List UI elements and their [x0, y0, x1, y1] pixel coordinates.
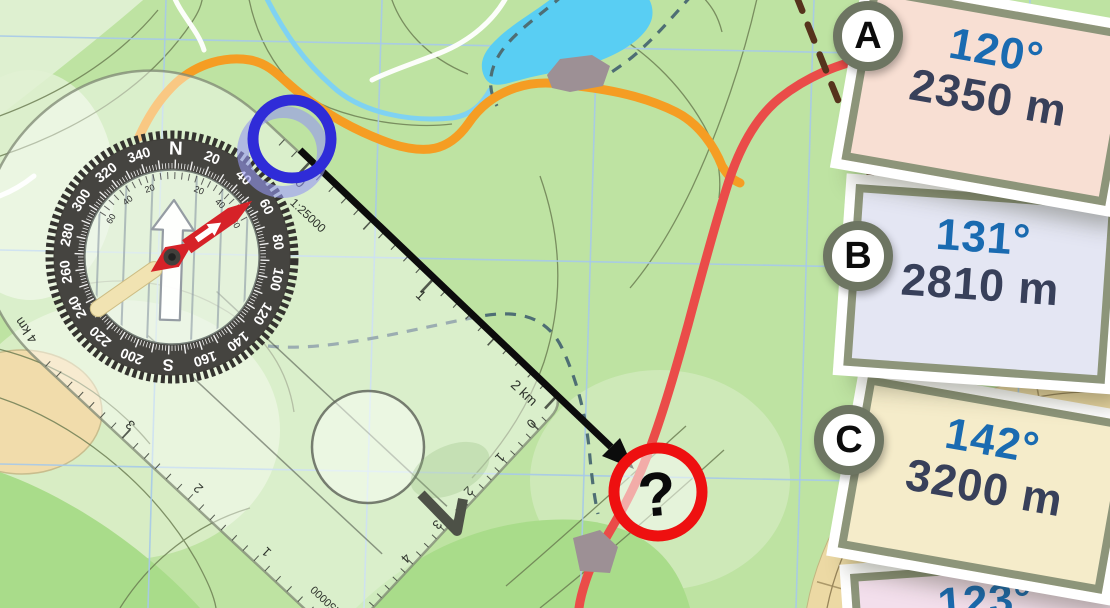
badge-option-c[interactable]: C	[814, 405, 884, 475]
target-question-mark: ?	[635, 459, 679, 531]
answer-card-b[interactable]: 131° 2810 m	[843, 184, 1110, 384]
dial-degree-label: 80	[269, 233, 287, 251]
dial-degree-label: S	[162, 355, 174, 373]
magnifier-lens	[312, 391, 424, 503]
distance-value: 3200 m	[902, 451, 1066, 525]
badge-option-a[interactable]: A	[833, 1, 903, 71]
distance-value: 2350 m	[906, 61, 1070, 135]
dial-degree-label: 260	[56, 259, 75, 285]
distance-value: 2810 m	[900, 256, 1062, 314]
orienteering-quiz: 012 km1:250003211:500004 km01234 N204060…	[0, 0, 1110, 608]
badge-option-b[interactable]: B	[823, 221, 893, 291]
dial-degree-label: N	[169, 138, 183, 159]
bearing-value: 123°	[936, 575, 1034, 608]
